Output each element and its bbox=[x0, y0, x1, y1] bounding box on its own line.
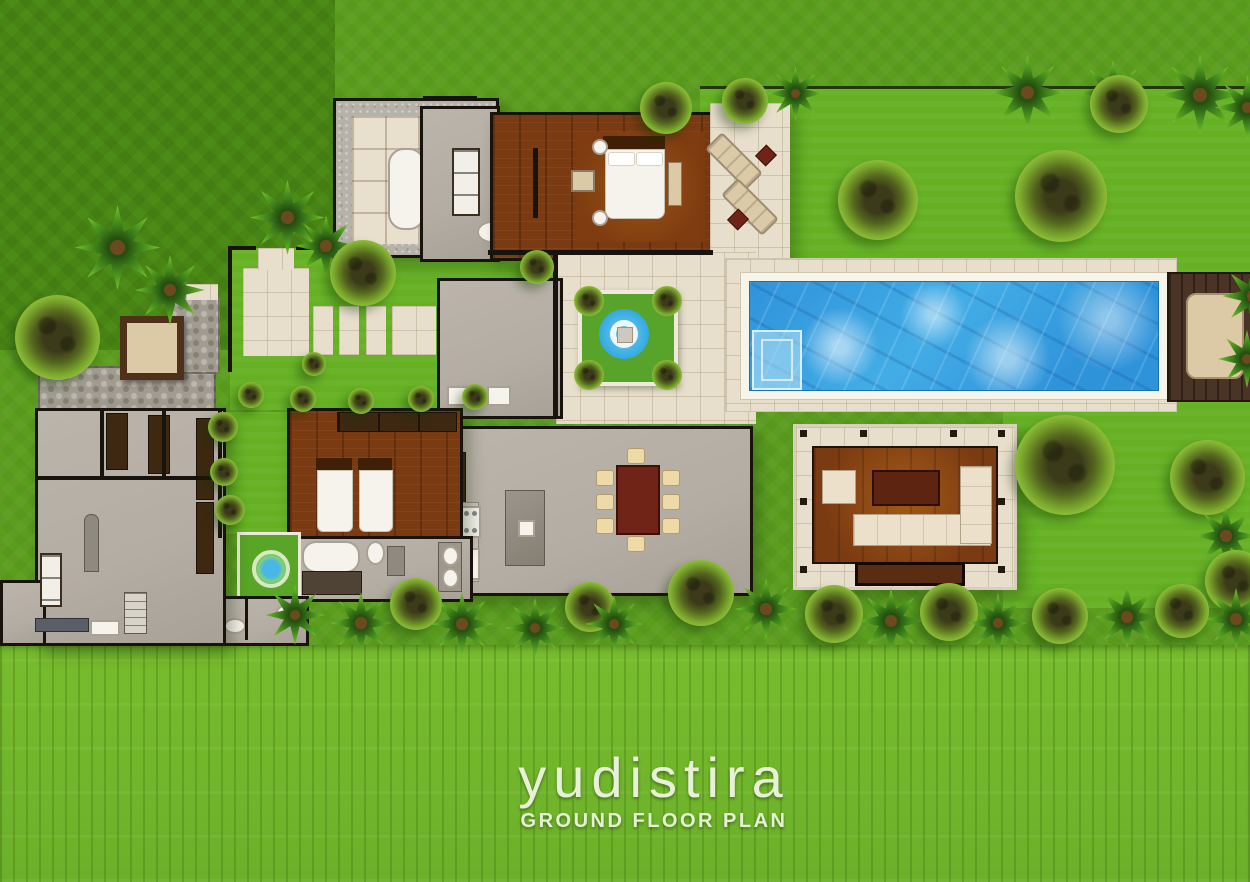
paver bbox=[339, 306, 359, 355]
shrub bbox=[238, 382, 264, 408]
closet bbox=[106, 413, 128, 470]
toilet bbox=[224, 618, 246, 634]
tv-cabinet bbox=[571, 170, 595, 192]
guest-wardrobe bbox=[337, 412, 457, 432]
shrub bbox=[290, 386, 316, 412]
corner-plant bbox=[574, 286, 604, 316]
sun-terrace bbox=[710, 103, 790, 271]
shower bbox=[387, 546, 405, 576]
powder-basin bbox=[487, 386, 511, 406]
shrub-tree bbox=[722, 78, 768, 124]
guest-bathtub bbox=[302, 541, 360, 573]
bedside-lamp bbox=[592, 210, 608, 226]
shrub-tree bbox=[640, 82, 692, 134]
dining-chair bbox=[596, 494, 614, 510]
palm-tree bbox=[735, 578, 797, 640]
twin-bed bbox=[317, 470, 353, 532]
shrub-tree bbox=[1090, 75, 1148, 133]
entry-walk-pad bbox=[243, 268, 309, 356]
garden-wall bbox=[228, 246, 232, 372]
counter bbox=[35, 618, 89, 632]
closet bbox=[148, 415, 170, 474]
shrub-tree bbox=[920, 583, 978, 641]
shrub-tree bbox=[330, 240, 396, 306]
paver bbox=[392, 306, 436, 355]
shrub bbox=[208, 412, 238, 442]
garden-fountain bbox=[252, 550, 290, 588]
alcove bbox=[84, 514, 99, 572]
dining-chair bbox=[627, 536, 645, 552]
shrub-tree bbox=[805, 585, 863, 643]
palm-tree bbox=[1160, 55, 1240, 135]
bedroom-bench bbox=[668, 162, 682, 206]
dining-chair bbox=[596, 518, 614, 534]
palm-tree bbox=[585, 595, 643, 653]
twin-bed bbox=[359, 470, 393, 532]
island-sink bbox=[518, 520, 535, 537]
basin bbox=[442, 546, 459, 566]
palm-tree bbox=[430, 592, 494, 656]
shrub-tree bbox=[1032, 588, 1088, 644]
corner-plant bbox=[652, 286, 682, 316]
pond-platform bbox=[617, 327, 633, 343]
dining-chair bbox=[662, 470, 680, 486]
dining-table bbox=[616, 465, 660, 535]
shrub-tree bbox=[838, 160, 918, 240]
basin bbox=[442, 568, 459, 588]
wardrobe bbox=[196, 502, 214, 574]
shrub-tree bbox=[668, 560, 734, 626]
courtyard-water-feature bbox=[578, 290, 678, 386]
corner-plant bbox=[574, 360, 604, 390]
entry-gate-canopy bbox=[120, 316, 184, 380]
toilet bbox=[366, 541, 385, 565]
entry-walk-stem bbox=[258, 248, 294, 270]
shrub-tree bbox=[1155, 584, 1209, 638]
palm-tree bbox=[135, 255, 205, 325]
shrub-tree bbox=[1015, 415, 1115, 515]
bed-headboard bbox=[358, 458, 392, 470]
wardrobe-shelves bbox=[452, 148, 480, 216]
shrub-tree bbox=[390, 578, 442, 630]
palm-tree bbox=[75, 205, 160, 290]
palm-tree bbox=[990, 55, 1065, 130]
paver bbox=[366, 306, 386, 355]
corner-plant bbox=[652, 360, 682, 390]
armchair bbox=[822, 470, 856, 504]
dining-chair bbox=[627, 448, 645, 464]
interior-wall bbox=[162, 410, 166, 476]
laundry-appliances bbox=[40, 553, 62, 607]
dining-chair bbox=[662, 494, 680, 510]
pool-steps bbox=[752, 330, 802, 390]
shrub-tree bbox=[1170, 440, 1245, 515]
sofa-chaise bbox=[960, 466, 992, 544]
palm-tree bbox=[858, 588, 924, 654]
shrub bbox=[408, 386, 434, 412]
bed-headboard bbox=[603, 136, 665, 149]
shrub bbox=[210, 458, 238, 486]
staircase bbox=[124, 592, 147, 634]
wc-divider-wall bbox=[245, 596, 248, 640]
shrub bbox=[462, 384, 488, 410]
palm-tree bbox=[505, 598, 565, 658]
bedroom-south-wall bbox=[488, 250, 713, 255]
dining-chair bbox=[596, 470, 614, 486]
palm-tree bbox=[265, 585, 325, 645]
coffee-table bbox=[872, 470, 940, 506]
logo: yudistira GROUND FLOOR PLAN bbox=[0, 750, 1250, 833]
logo-title: yudistira bbox=[58, 750, 1250, 806]
bed-headboard bbox=[316, 458, 352, 470]
palm-tree bbox=[768, 66, 823, 121]
shrub bbox=[348, 388, 374, 414]
shrub bbox=[520, 250, 554, 284]
bedside-lamp bbox=[592, 139, 608, 155]
paver bbox=[313, 306, 333, 355]
shrub-tree bbox=[15, 295, 100, 380]
swimming-pool bbox=[749, 281, 1159, 391]
pillow bbox=[608, 152, 635, 166]
bath-vanity bbox=[302, 571, 362, 595]
interior-wall bbox=[38, 476, 218, 480]
villa-ground-floor-plan: yudistira GROUND FLOOR PLAN bbox=[0, 0, 1250, 882]
shrub bbox=[302, 352, 326, 376]
palm-tree bbox=[1095, 585, 1159, 649]
shrub bbox=[215, 495, 245, 525]
logo-subtitle: GROUND FLOOR PLAN bbox=[58, 810, 1250, 833]
shrub-tree bbox=[1015, 150, 1107, 242]
palm-tree bbox=[968, 593, 1028, 653]
palm-tree bbox=[330, 592, 392, 654]
garden-wall bbox=[228, 246, 256, 250]
pillow bbox=[636, 152, 663, 166]
interior-wall bbox=[533, 148, 538, 218]
courtyard-west-wall bbox=[553, 250, 558, 418]
stove bbox=[460, 506, 481, 538]
dining-chair bbox=[662, 518, 680, 534]
interior-wall bbox=[100, 410, 104, 476]
counter-sink bbox=[90, 620, 120, 636]
